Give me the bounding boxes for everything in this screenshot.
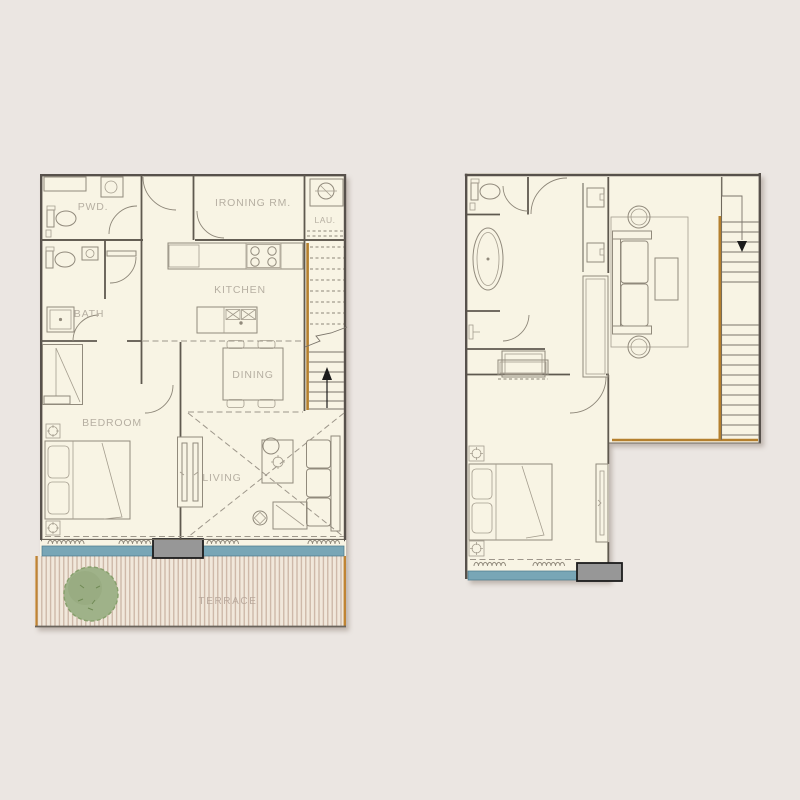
bath-label: BATH (74, 308, 104, 320)
living-label: LIVING (202, 472, 241, 484)
bedroom-label: BEDROOM (82, 417, 142, 429)
balcony-threshold (577, 563, 622, 581)
balcony-threshold (153, 539, 203, 558)
floor-plan-canvas: TERRACE (0, 0, 800, 800)
laundry-label: LAU. (315, 215, 336, 225)
dining-label: DINING (232, 369, 274, 381)
lower-floor-plan: TERRACE (35, 174, 347, 627)
terrace: TERRACE (35, 556, 346, 627)
pwd-label: PWD. (78, 201, 109, 213)
kitchen-label: KITCHEN (214, 284, 266, 296)
terrace-label: TERRACE (199, 596, 258, 607)
terrace-tree (64, 567, 118, 621)
ironing-room-label: IRONING RM. (215, 197, 291, 209)
window-sill (468, 571, 577, 580)
